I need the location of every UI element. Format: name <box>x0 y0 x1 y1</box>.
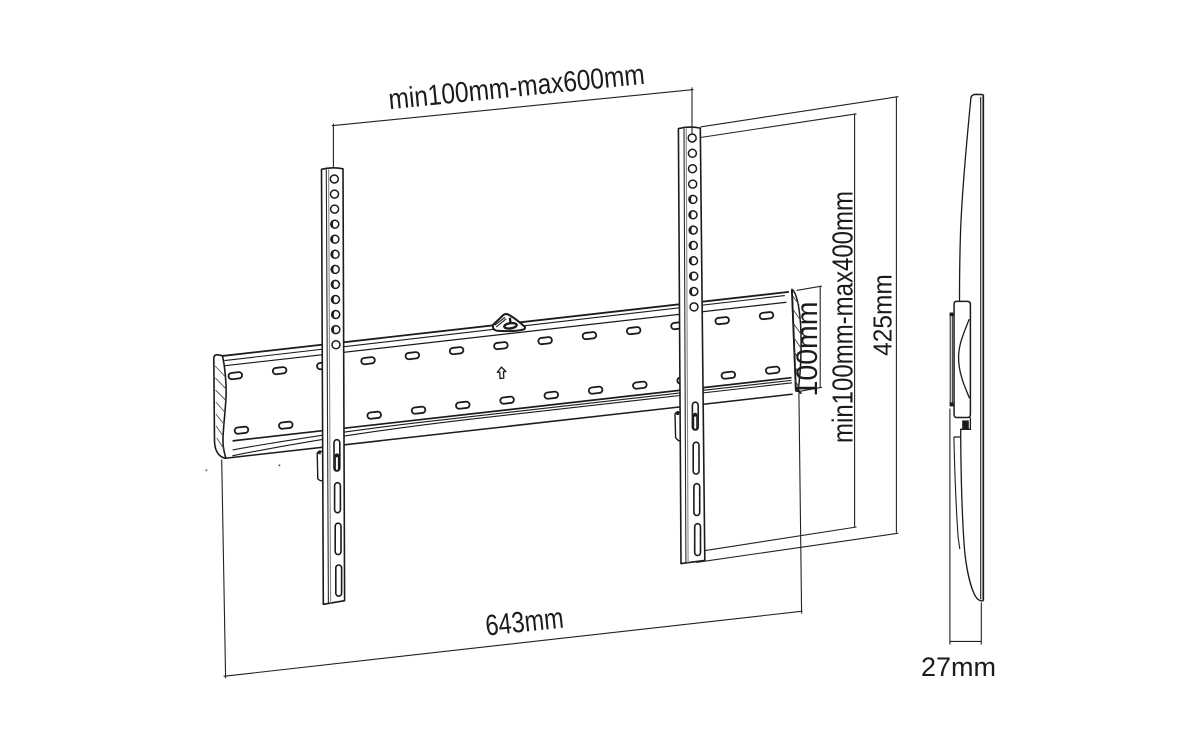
svg-text:425mm: 425mm <box>869 274 898 356</box>
svg-text:27mm: 27mm <box>921 652 996 682</box>
svg-text:min100mm-max400mm: min100mm-max400mm <box>826 191 859 443</box>
svg-text:100mm: 100mm <box>792 301 824 396</box>
